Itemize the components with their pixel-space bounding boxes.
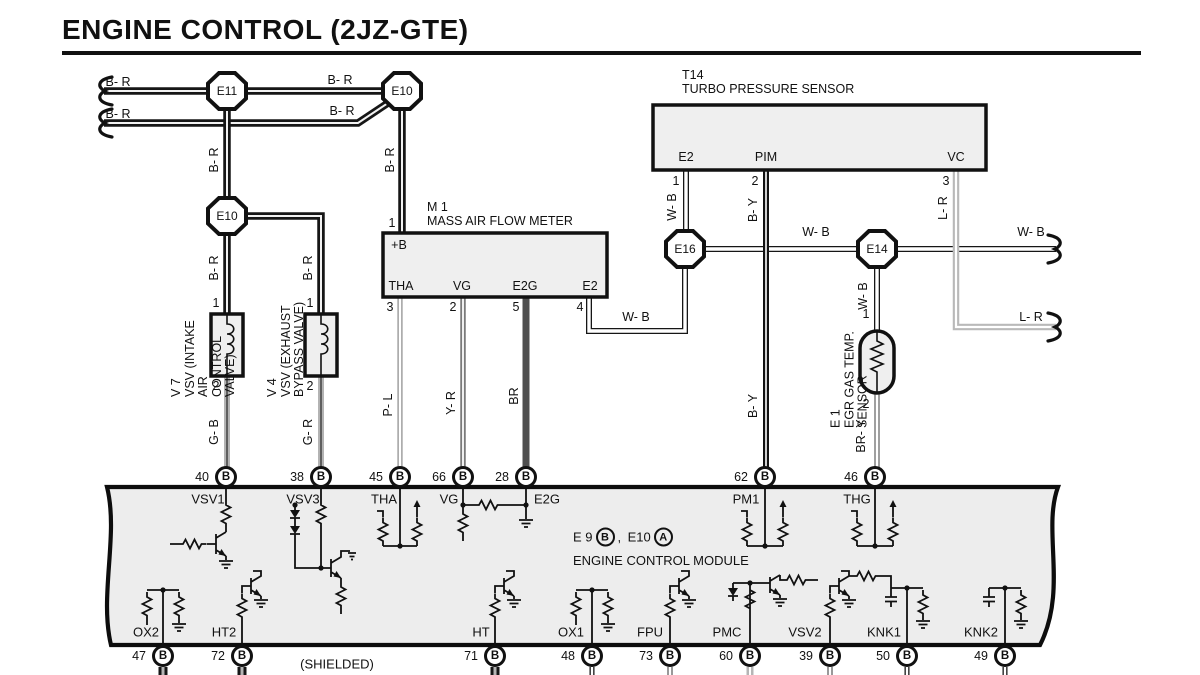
terminal-name: KNK2 <box>964 625 998 640</box>
terminal-circle: B <box>754 466 776 488</box>
box-terminal-label: +B <box>391 238 407 252</box>
pin-number: 2 <box>307 379 314 393</box>
ecm-label: ENGINE CONTROL MODULE <box>573 553 749 568</box>
junction-connector: E10 <box>381 71 423 111</box>
connector-ref: E 9 <box>573 530 593 545</box>
terminal-name: OX2 <box>133 625 159 640</box>
terminal-circle: B <box>896 645 918 667</box>
connector-label: E16 <box>668 233 702 265</box>
box-terminal-label: VC <box>947 150 964 164</box>
wire-color-label: W- B <box>665 193 679 221</box>
wire-color-label: BR <box>507 387 521 404</box>
junction-connector: E14 <box>856 229 898 269</box>
pin-number: 1 <box>307 296 314 310</box>
terminal-circle: B <box>581 645 603 667</box>
pin-number: 5 <box>513 300 520 314</box>
turbo-sensor-title: T14 TURBO PRESSURE SENSOR <box>682 68 854 96</box>
box-terminal-label: E2 <box>678 150 693 164</box>
terminal-name: OX1 <box>558 625 584 640</box>
box-terminal-label: E2 <box>582 279 597 293</box>
component-label-line: E 1 <box>830 298 844 428</box>
terminal-pin-number: 38 <box>290 470 308 484</box>
terminal-name: THG <box>843 492 870 507</box>
mass-air-flow-meter-box <box>383 233 607 297</box>
pin-number: 1 <box>389 216 396 230</box>
terminal-pin-number: 62 <box>734 470 752 484</box>
terminal-pin-number: 72 <box>211 649 229 663</box>
component-label-line: VSV (INTAKE AIR <box>184 297 211 397</box>
terminal-name: VSV1 <box>191 492 224 507</box>
box-terminal-label: PIM <box>755 150 777 164</box>
connector-label: E10 <box>210 200 244 232</box>
terminal-circle: B <box>739 645 761 667</box>
wire-color-label: B- R <box>328 73 353 87</box>
box-terminal-label: THA <box>389 279 414 293</box>
terminal-name: HT2 <box>212 625 237 640</box>
component-label: V 4VSV (EXHAUSTBYPASS VALVE) <box>266 297 306 397</box>
component-label: V 7VSV (INTAKE AIRCONTROL VALVE) <box>170 297 210 397</box>
wire-color-label: B- R <box>207 256 221 281</box>
junction-connector: E11 <box>206 71 248 111</box>
wire-color-label: B- R <box>301 256 315 281</box>
component-label: E 1EGR GAS TEMP. SENSOR <box>830 298 857 428</box>
box-terminal-label: E2G <box>512 279 537 293</box>
connector-label: E14 <box>860 233 894 265</box>
terminal-circle: B <box>215 466 237 488</box>
device-name: TURBO PRESSURE SENSOR <box>682 82 854 96</box>
terminal-pin-number: 50 <box>876 649 894 663</box>
terminal-pin-number: 45 <box>369 470 387 484</box>
terminal-name: HT <box>472 625 489 640</box>
terminal-pin-number: 28 <box>495 470 513 484</box>
turbo-pressure-sensor-box <box>653 105 986 170</box>
wire-color-label: B- Y <box>746 394 760 418</box>
connector-letter-badge: B <box>596 528 615 547</box>
terminal-name: VSV2 <box>788 625 821 640</box>
pin-number: 4 <box>577 300 584 314</box>
wire-color-label: B- R <box>207 148 221 173</box>
device-ref: T14 <box>682 68 854 82</box>
terminal-name: THA <box>371 492 397 507</box>
terminal-pin-number: 48 <box>561 649 579 663</box>
terminal-name: FPU <box>637 625 663 640</box>
wire-color-label: B- R <box>106 107 131 121</box>
wire-color-label: P- L <box>381 394 395 417</box>
terminal-pin-number: 66 <box>432 470 450 484</box>
terminal-pin-number: 60 <box>719 649 737 663</box>
pin-number: 2 <box>752 174 759 188</box>
wire-color-label: G- B <box>207 419 221 445</box>
wire-color-label: G- R <box>301 419 315 445</box>
terminal-circle: B <box>389 466 411 488</box>
terminal-pin-number: 47 <box>132 649 150 663</box>
wire-color-label: B- R <box>330 104 355 118</box>
connector-label: E11 <box>210 75 244 107</box>
shielded-note: (SHIELDED) <box>300 657 374 672</box>
pin-number: 3 <box>943 174 950 188</box>
device-name: MASS AIR FLOW METER <box>427 214 573 228</box>
terminal-circle: B <box>994 645 1016 667</box>
component-label-line: VSV (EXHAUST <box>280 297 294 397</box>
pin-number: 3 <box>387 300 394 314</box>
connector-label: E10 <box>385 75 419 107</box>
component-label-line: EGR GAS TEMP. SENSOR <box>843 298 870 428</box>
connector-letter-badge: A <box>654 528 673 547</box>
terminal-circle: B <box>152 645 174 667</box>
wire-color-label: B- R <box>383 148 397 173</box>
terminal-name: E2G <box>534 492 560 507</box>
connector-ref: E10 <box>628 530 651 545</box>
terminal-circle: B <box>484 645 506 667</box>
terminal-circle: B <box>515 466 537 488</box>
box-terminal-label: VG <box>453 279 471 293</box>
component-label-line: CONTROL VALVE) <box>211 297 238 397</box>
pin-number: 2 <box>450 300 457 314</box>
terminal-circle: B <box>659 645 681 667</box>
wire-color-label: W- B <box>1017 225 1045 239</box>
pin-number: 1 <box>673 174 680 188</box>
terminal-circle: B <box>452 466 474 488</box>
wire-color-label: W- B <box>802 225 830 239</box>
terminal-name: VG <box>440 492 459 507</box>
junction-connector: E16 <box>664 229 706 269</box>
terminal-name: PM1 <box>733 492 760 507</box>
component-label-line: BYPASS VALVE) <box>293 297 307 397</box>
terminal-pin-number: 71 <box>464 649 482 663</box>
terminal-name: PMC <box>713 625 742 640</box>
terminal-name: VSV3 <box>286 492 319 507</box>
wire-color-label: L- R <box>936 196 950 220</box>
terminal-circle: B <box>864 466 886 488</box>
wire-color-label: B- R <box>106 75 131 89</box>
terminal-name: KNK1 <box>867 625 901 640</box>
device-ref: M 1 <box>427 200 573 214</box>
terminal-pin-number: 46 <box>844 470 862 484</box>
terminal-circle: B <box>310 466 332 488</box>
terminal-pin-number: 49 <box>974 649 992 663</box>
terminal-pin-number: 40 <box>195 470 213 484</box>
terminal-pin-number: 73 <box>639 649 657 663</box>
maf-meter-title: M 1 MASS AIR FLOW METER <box>427 200 573 228</box>
wire-color-label: Y- R <box>444 391 458 415</box>
terminal-pin-number: 39 <box>799 649 817 663</box>
wire-color-label: B- Y <box>746 198 760 222</box>
terminal-circle: B <box>819 645 841 667</box>
engine-wiring-diagram: ENGINE CONTROL (2JZ-GTE) <box>0 0 1200 675</box>
component-label-line: V 4 <box>266 297 280 397</box>
junction-connector: E10 <box>206 196 248 236</box>
ecm-note: E 9 B, E10 A <box>573 528 676 547</box>
wire-color-label: L- R <box>1019 310 1043 324</box>
wire-color-label: W- B <box>622 310 650 324</box>
component-label-line: V 7 <box>170 297 184 397</box>
terminal-circle: B <box>231 645 253 667</box>
